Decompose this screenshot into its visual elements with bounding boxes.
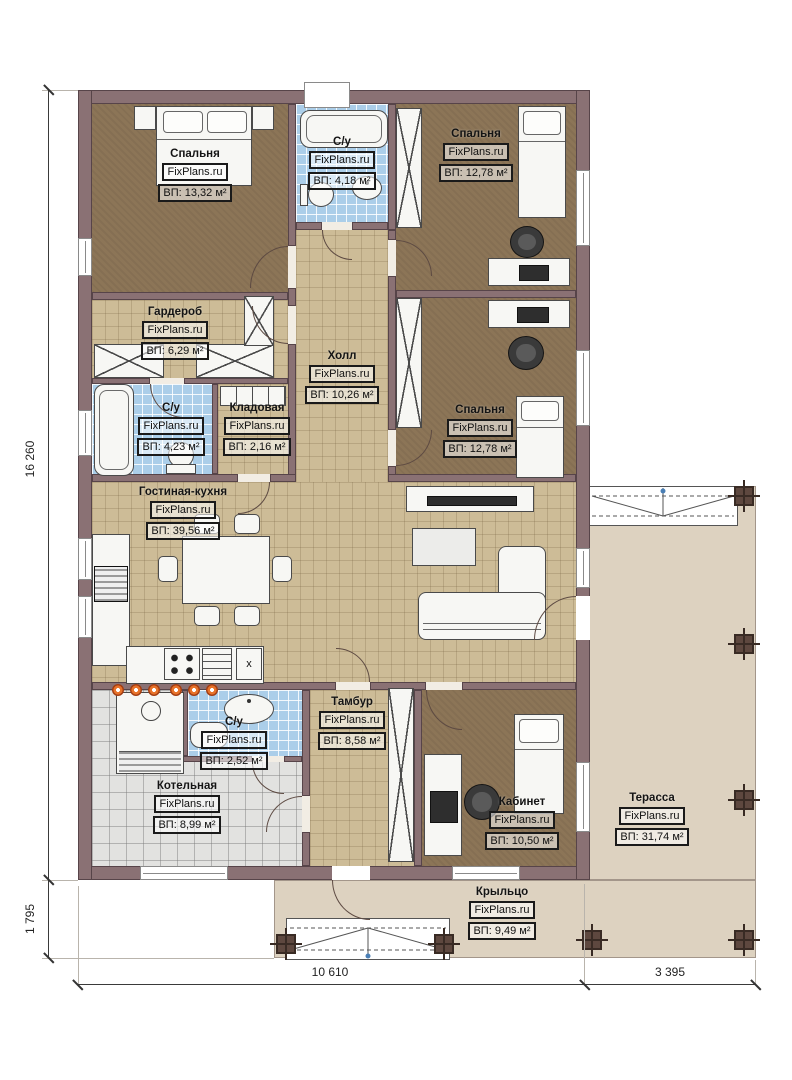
extension-line (755, 960, 756, 984)
exterior-wall (78, 90, 92, 880)
column (582, 930, 602, 950)
room-label-boiler: Котельная FixPlans.ru ВП: 8,99 м² (112, 780, 262, 834)
brand-watermark: FixPlans.ru (309, 151, 374, 169)
extension-line (78, 886, 79, 984)
wall-segment (352, 222, 388, 230)
door-opening (426, 682, 462, 690)
brand-watermark: FixPlans.ru (201, 731, 266, 749)
cabinet-mark: x (246, 658, 252, 670)
column (734, 930, 754, 950)
wall-segment (288, 104, 296, 246)
built-in-wardrobe (396, 298, 422, 428)
wall-segment (388, 230, 396, 240)
desk (488, 300, 570, 328)
wall-segment (302, 832, 310, 866)
room-label-wardrobe: Гардероб FixPlans.ru ВП: 6,29 м² (100, 306, 250, 360)
window (78, 596, 92, 638)
room-area: ВП: 8,99 м² (153, 816, 220, 834)
wall-segment (184, 378, 288, 384)
nightstand (134, 106, 156, 130)
monitor (430, 791, 458, 823)
dimension-bottom-main: 10 610 (290, 965, 370, 979)
window (78, 538, 92, 580)
door-opening (388, 430, 396, 466)
wall-segment (388, 276, 396, 430)
sofa (418, 592, 546, 640)
brand-watermark: FixPlans.ru (447, 419, 512, 437)
room-area: ВП: 12,78 м² (439, 164, 512, 182)
nightstand (252, 106, 274, 130)
door-opening (576, 596, 590, 640)
column (434, 934, 454, 954)
computer-desk (424, 754, 462, 856)
column (734, 790, 754, 810)
room-label-vestibule: Тамбур FixPlans.ru ВП: 8,58 м² (306, 696, 398, 750)
column (734, 486, 754, 506)
room-area: ВП: 6,29 м² (141, 342, 208, 360)
wall-segment (396, 290, 576, 298)
window (78, 238, 92, 276)
wall-segment (296, 222, 322, 230)
coffee-table (412, 528, 476, 566)
door-opening (302, 796, 310, 832)
kitchen-sink (94, 566, 128, 602)
brand-watermark: FixPlans.ru (142, 321, 207, 339)
door-opening (322, 222, 352, 230)
wall-segment (288, 288, 296, 306)
wall-segment (388, 104, 396, 230)
brand-watermark: FixPlans.ru (309, 365, 374, 383)
extension-line (42, 958, 274, 959)
room-label-terrace: Терасса FixPlans.ru ВП: 31,74 м² (596, 792, 708, 846)
room-area: ВП: 12,78 м² (443, 440, 516, 458)
door-opening (336, 682, 370, 690)
door-opening (238, 474, 270, 482)
heating-valve (112, 684, 124, 696)
chimney-vent (304, 82, 350, 108)
room-area: ВП: 8,58 м² (318, 732, 385, 750)
brand-watermark: FixPlans.ru (154, 795, 219, 813)
room-area: ВП: 4,23 м² (137, 438, 204, 456)
column (734, 634, 754, 654)
wall-segment (270, 474, 296, 482)
heating-valve (130, 684, 142, 696)
dining-table (182, 536, 270, 604)
room-area: ВП: 13,32 м² (158, 184, 231, 202)
tv-console (406, 486, 534, 512)
heating-valve (188, 684, 200, 696)
room-area: ВП: 10,26 м² (305, 386, 378, 404)
kitchen-cabinet: x (236, 648, 262, 680)
dimension-left-porch: 1 795 (23, 889, 37, 949)
dimension-line-left-porch (48, 880, 49, 958)
dining-chair (272, 556, 292, 582)
porch-steps (286, 918, 450, 960)
window (576, 350, 590, 426)
dimension-bottom-right: 3 395 (630, 965, 710, 979)
wall-segment (462, 682, 576, 690)
dimension-line-bottom (78, 984, 756, 985)
dimension-left-total: 16 260 (23, 429, 37, 489)
room-area: ВП: 9,49 м² (468, 922, 535, 940)
brand-watermark: FixPlans.ru (162, 163, 227, 181)
brand-watermark: FixPlans.ru (619, 807, 684, 825)
room-label-bathroom-1: С/у FixPlans.ru ВП: 4,18 м² (298, 136, 386, 190)
extension-line (584, 884, 585, 984)
room-label-hall: Холл FixPlans.ru ВП: 10,26 м² (296, 350, 388, 404)
brand-watermark: FixPlans.ru (150, 501, 215, 519)
oven (202, 648, 232, 680)
brand-watermark: FixPlans.ru (319, 711, 384, 729)
desk (488, 258, 570, 286)
window (576, 548, 590, 588)
tv (427, 496, 517, 506)
brand-watermark: FixPlans.ru (489, 811, 554, 829)
room-label-storage: Кладовая FixPlans.ru ВП: 2,16 м² (210, 402, 304, 456)
room-area: ВП: 39,56 м² (146, 522, 219, 540)
room-area: ВП: 4,18 м² (308, 172, 375, 190)
window (452, 866, 520, 880)
door-opening (388, 240, 396, 276)
window (140, 866, 228, 880)
room-area: ВП: 2,52 м² (200, 752, 267, 770)
built-in-wardrobe (396, 108, 422, 228)
office-chair (510, 226, 544, 258)
office-chair (508, 336, 544, 370)
dining-chair (194, 606, 220, 626)
room-area: ВП: 10,50 м² (485, 832, 558, 850)
room-label-bedroom-1: Спальня FixPlans.ru ВП: 13,32 м² (128, 148, 262, 202)
dining-chair (158, 556, 178, 582)
dining-chair (234, 606, 260, 626)
wall-segment (414, 690, 422, 866)
floor-plan-canvas: x Спальня (0, 0, 792, 1080)
door-opening (288, 306, 296, 344)
terrace-stairs (588, 486, 738, 526)
window (576, 762, 590, 832)
brand-watermark: FixPlans.ru (224, 417, 289, 435)
brand-watermark: FixPlans.ru (469, 901, 534, 919)
room-label-porch: Крыльцо FixPlans.ru ВП: 9,49 м² (446, 886, 558, 940)
door-opening (332, 866, 370, 880)
column (276, 934, 296, 954)
window (576, 170, 590, 246)
room-area: ВП: 31,74 м² (615, 828, 688, 846)
room-label-living-kitchen: Гостиная-кухня FixPlans.ru ВП: 39,56 м² (118, 486, 248, 540)
heating-valve (206, 684, 218, 696)
brand-watermark: FixPlans.ru (138, 417, 203, 435)
brand-watermark: FixPlans.ru (443, 143, 508, 161)
door-opening (288, 246, 296, 288)
room-label-bedroom-3: Спальня FixPlans.ru ВП: 12,78 м² (424, 404, 536, 458)
dimension-line-left (48, 90, 49, 880)
room-label-bedroom-2: Спальня FixPlans.ru ВП: 12,78 м² (420, 128, 532, 182)
window (78, 410, 92, 456)
wall-segment (284, 756, 302, 762)
heating-valve (170, 684, 182, 696)
room-area: ВП: 2,16 м² (223, 438, 290, 456)
toilet (166, 464, 196, 474)
room-label-office: Кабинет FixPlans.ru ВП: 10,50 м² (470, 796, 574, 850)
stove (164, 648, 200, 680)
heating-valve (148, 684, 160, 696)
boiler (116, 692, 184, 774)
room-label-bathroom-3: С/у FixPlans.ru ВП: 2,52 м² (188, 716, 280, 770)
